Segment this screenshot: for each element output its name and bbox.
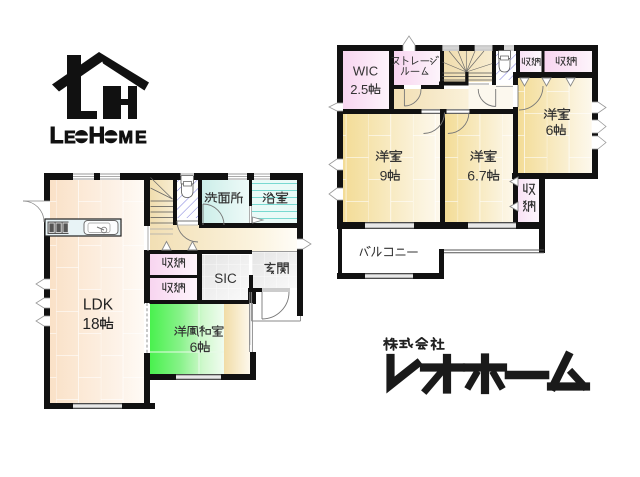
svg-text:18: 18	[82, 316, 99, 333]
svg-text:6: 6	[190, 339, 198, 355]
svg-text:SIC: SIC	[214, 271, 237, 286]
svg-text:2.5: 2.5	[350, 82, 368, 97]
svg-text:LDK: LDK	[83, 297, 114, 314]
svg-text:E: E	[135, 127, 147, 147]
svg-text:6.7: 6.7	[467, 168, 487, 184]
svg-text:6: 6	[546, 122, 554, 138]
svg-text:9: 9	[380, 168, 388, 184]
svg-text:L: L	[50, 122, 64, 148]
svg-text:WIC: WIC	[353, 64, 378, 79]
svg-text:M: M	[119, 127, 134, 147]
svg-text:E: E	[64, 127, 76, 147]
svg-text:H: H	[89, 122, 106, 148]
